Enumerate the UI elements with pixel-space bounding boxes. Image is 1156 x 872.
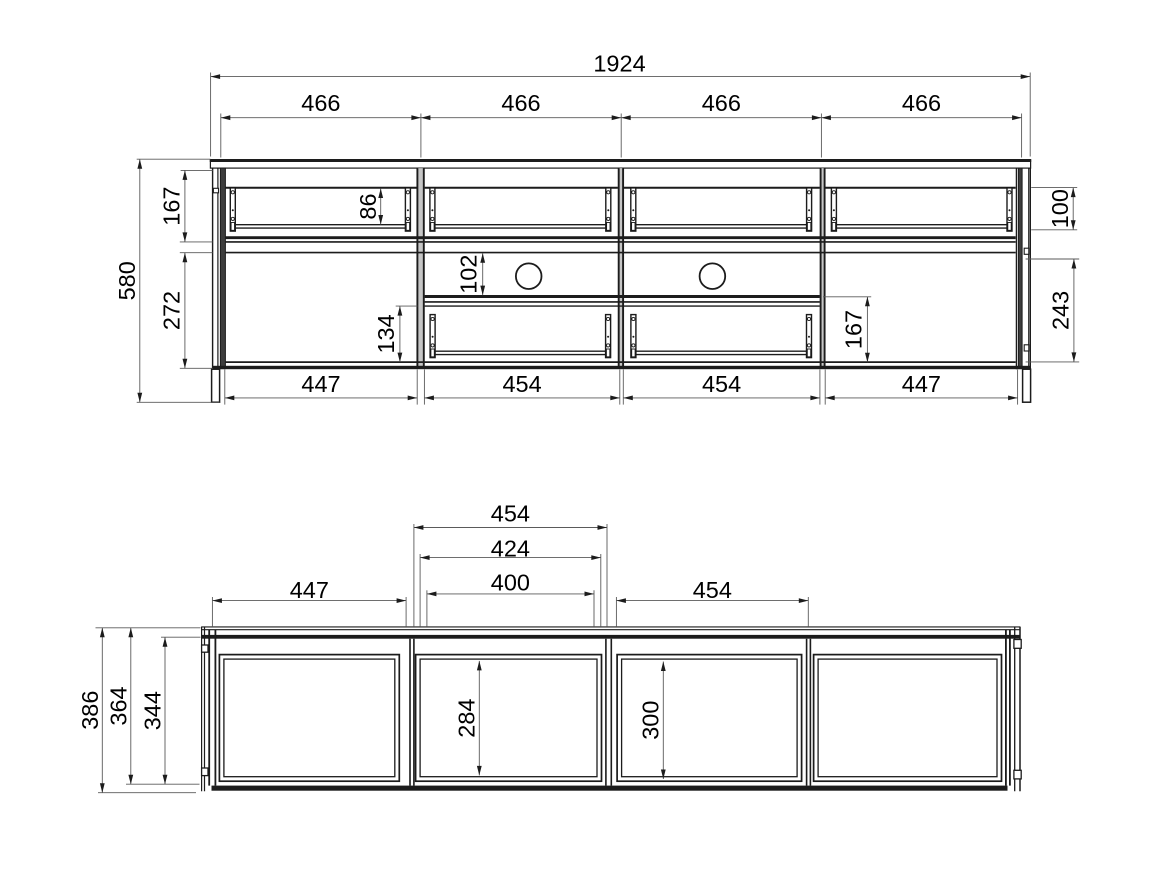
- svg-text:1924: 1924: [593, 50, 645, 76]
- svg-text:386: 386: [77, 691, 103, 730]
- svg-text:447: 447: [290, 577, 329, 603]
- svg-text:272: 272: [158, 291, 184, 330]
- svg-text:454: 454: [702, 371, 741, 397]
- svg-text:364: 364: [105, 686, 131, 725]
- svg-text:86: 86: [355, 193, 381, 219]
- svg-text:243: 243: [1047, 291, 1073, 330]
- svg-text:400: 400: [491, 570, 530, 596]
- svg-text:102: 102: [456, 255, 482, 294]
- svg-text:454: 454: [502, 371, 541, 397]
- svg-text:167: 167: [158, 186, 184, 225]
- svg-text:447: 447: [301, 371, 340, 397]
- svg-text:580: 580: [114, 261, 140, 300]
- svg-text:300: 300: [638, 701, 664, 740]
- svg-text:424: 424: [491, 536, 530, 562]
- svg-text:447: 447: [902, 371, 941, 397]
- svg-text:167: 167: [841, 310, 867, 349]
- svg-text:466: 466: [702, 90, 741, 116]
- svg-text:454: 454: [693, 577, 732, 603]
- svg-text:466: 466: [902, 90, 941, 116]
- svg-text:100: 100: [1047, 189, 1073, 228]
- svg-text:134: 134: [373, 314, 399, 353]
- svg-text:466: 466: [301, 90, 340, 116]
- svg-text:466: 466: [501, 90, 540, 116]
- svg-text:284: 284: [454, 698, 480, 737]
- svg-text:454: 454: [491, 501, 530, 527]
- svg-text:344: 344: [140, 691, 166, 730]
